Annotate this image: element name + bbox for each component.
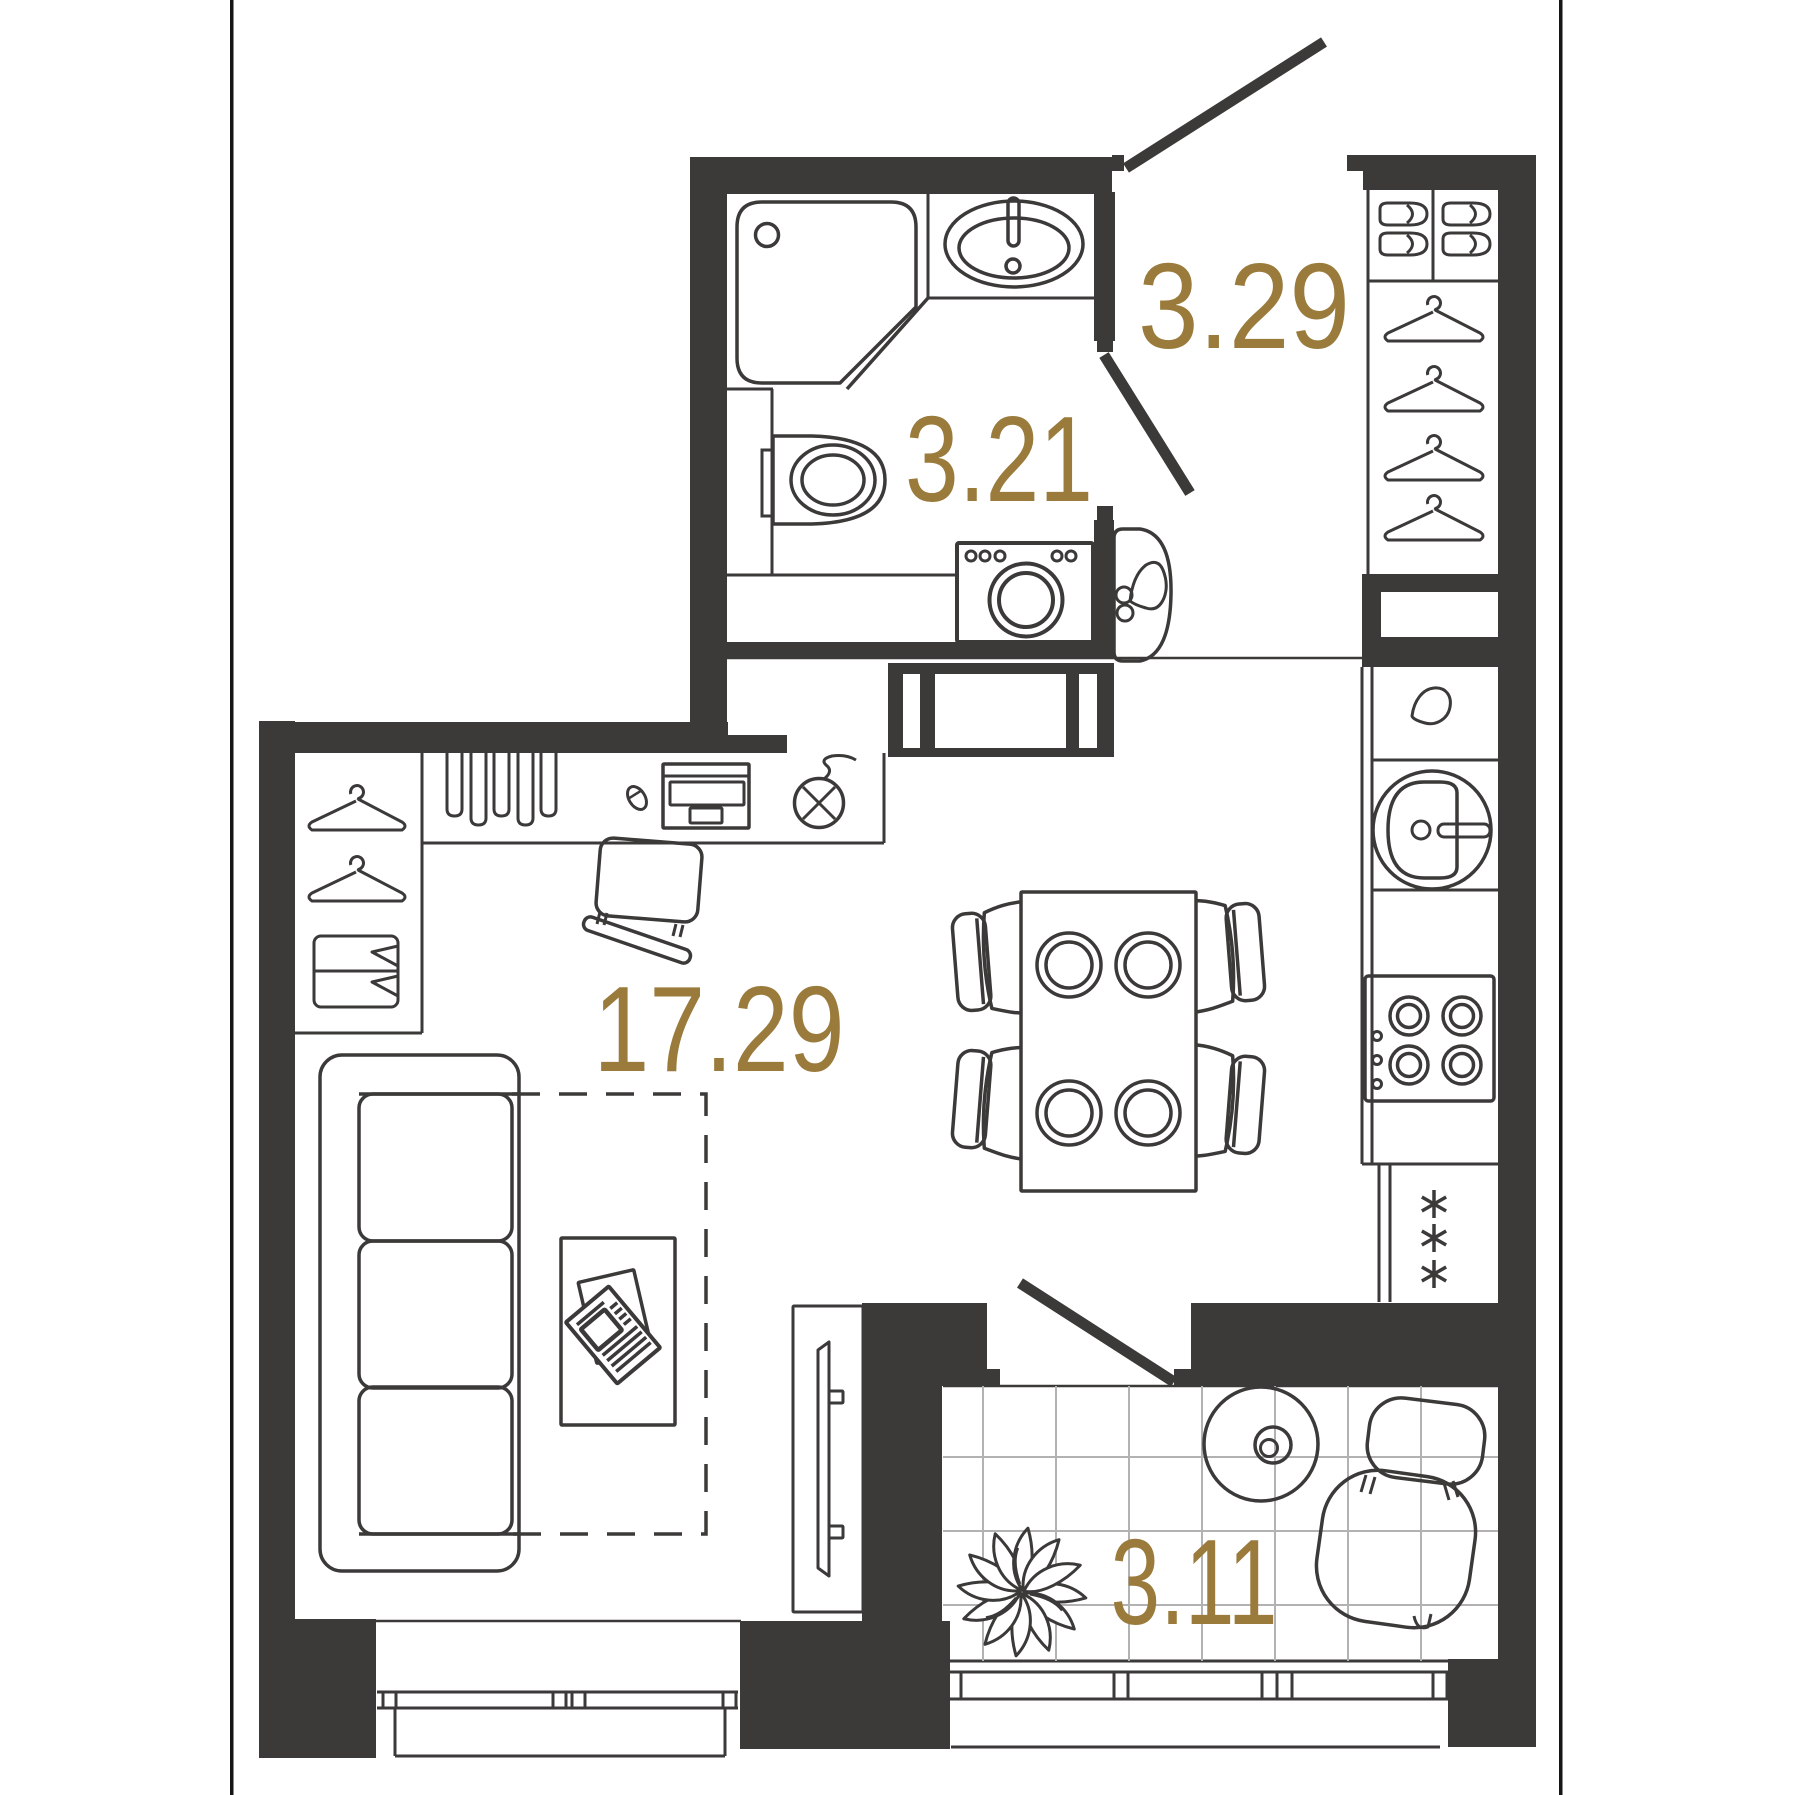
svg-text:17.29: 17.29 — [594, 961, 845, 1097]
svg-text:3.11: 3.11 — [1111, 1514, 1278, 1650]
svg-text:3.21: 3.21 — [905, 391, 1093, 527]
svg-text:3.29: 3.29 — [1138, 238, 1350, 374]
